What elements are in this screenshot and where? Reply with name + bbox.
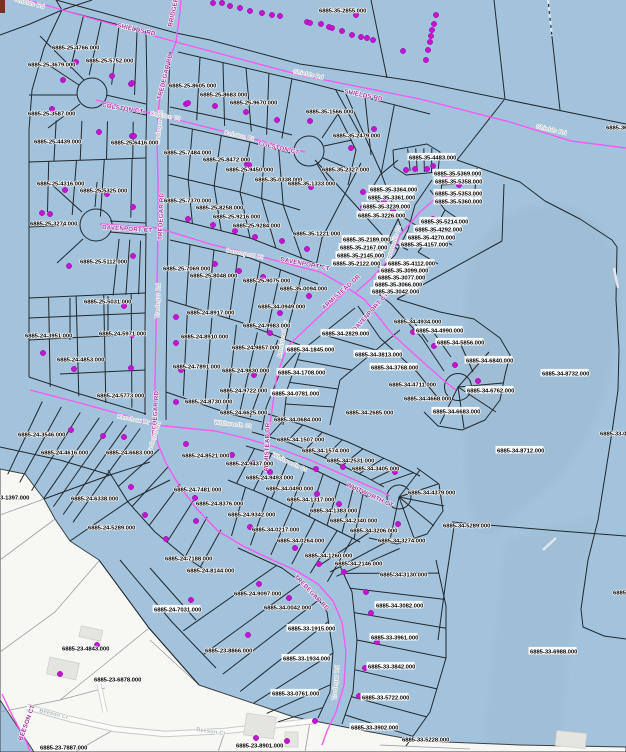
svg-text:6885-35-2167.000: 6885-35-2167.000 [340, 245, 388, 251]
svg-text:6885-24-9857.000: 6885-24-9857.000 [232, 345, 280, 351]
svg-text:6885-34-2146.000: 6885-34-2146.000 [335, 561, 383, 567]
svg-text:6885-34-3768.000: 6885-34-3768.000 [371, 365, 419, 371]
svg-text:6885-23-6878.000: 6885-23-6878.000 [94, 677, 142, 683]
svg-text:6885-25-5031.000: 6885-25-5031.000 [84, 299, 132, 305]
svg-text:6885-23-8901.000: 6885-23-8901.000 [236, 743, 284, 749]
svg-text:6885-25-8683.000: 6885-25-8683.000 [200, 92, 248, 98]
svg-text:6885-24-8521.000: 6885-24-8521.000 [182, 453, 230, 459]
svg-text:6885-25-9216.000: 6885-25-9216.000 [213, 214, 261, 220]
svg-text:6885-24-8144.000: 6885-24-8144.000 [187, 568, 235, 574]
svg-text:6885-25-7370.000: 6885-25-7370.000 [164, 198, 212, 204]
svg-text:6885-33-6988.000: 6885-33-6988.000 [530, 649, 578, 655]
svg-text:6885-34-3206.000: 6885-34-3206.000 [350, 528, 398, 534]
svg-text:6885-34-6762.000: 6885-34-6762.000 [467, 388, 515, 394]
svg-text:6885-24-3951.000: 6885-24-3951.000 [25, 333, 73, 339]
svg-text:6885-25-9075.000: 6885-25-9075.000 [243, 278, 291, 284]
svg-text:6885-24-9983.000: 6885-24-9983.000 [243, 323, 291, 329]
svg-text:6885-24-6338.000: 6885-24-6338.000 [71, 496, 119, 502]
svg-text:6885-25-3274.000: 6885-25-3274.000 [30, 221, 78, 227]
svg-text:6885-23-8866.000: 6885-23-8866.000 [205, 648, 253, 654]
svg-text:6885-35-2122.000: 6885-35-2122.000 [333, 261, 381, 267]
svg-text:6885-35-4112.000: 6885-35-4112.000 [388, 261, 436, 267]
svg-text:6885-35-1566.000: 6885-35-1566.000 [306, 109, 354, 115]
svg-text:6885-24-9830.000: 6885-24-9830.000 [222, 368, 270, 374]
svg-text:6885-24-5289.000: 6885-24-5289.000 [88, 525, 136, 531]
svg-text:6885-34-4934.000: 6885-34-4934.000 [394, 319, 442, 325]
svg-text:6885-23-4843.000: 6885-23-4843.000 [62, 646, 110, 652]
svg-text:6885-25-9670.000: 6885-25-9670.000 [230, 100, 278, 106]
svg-text:6885-33-8016.000: 6885-33-8016.000 [613, 590, 626, 596]
svg-text:6885-34-4668.000: 6885-34-4668.000 [404, 396, 452, 402]
svg-text:6885-24-9493.000: 6885-24-9493.000 [246, 475, 294, 481]
svg-text:6885-33-3842.000: 6885-33-3842.000 [368, 664, 416, 670]
svg-text:6885-35-2145.000: 6885-35-2145.000 [337, 253, 385, 259]
svg-text:6885-24-4616.000: 6885-24-4616.000 [41, 450, 89, 456]
svg-text:6885-25-5752.000: 6885-25-5752.000 [86, 58, 134, 64]
svg-text:6885-35-1221.000: 6885-35-1221.000 [293, 231, 341, 237]
svg-text:6885-35-4157.000: 6885-35-4157.000 [401, 242, 449, 248]
svg-text:6885-33-3961.000: 6885-33-3961.000 [371, 635, 419, 641]
svg-text:6885-35-2855.000: 6885-35-2855.000 [319, 8, 367, 14]
svg-text:6885-25-8605.000: 6885-25-8605.000 [169, 83, 217, 89]
svg-text:6885-35-3239.000: 6885-35-3239.000 [363, 204, 411, 210]
svg-text:6885-35-3361.000: 6885-35-3361.000 [368, 195, 416, 201]
svg-text:6885-34-6840.000: 6885-34-6840.000 [466, 358, 514, 364]
svg-text:6885-24-7031.000: 6885-24-7031.000 [154, 607, 202, 613]
svg-text:6885-25-7484.000: 6885-25-7484.000 [164, 150, 212, 156]
svg-text:6885-25-5325.000: 6885-25-5325.000 [80, 188, 128, 194]
svg-text:6885-25-4766.000: 6885-25-4766.000 [52, 45, 100, 51]
svg-text:6885-34-2531.000: 6885-34-2531.000 [327, 458, 375, 464]
svg-text:6885-35-2479.000: 6885-35-2479.000 [333, 133, 381, 139]
svg-text:6885-25-8048.000: 6885-25-8048.000 [190, 273, 238, 279]
svg-text:6885-35-3226.000: 6885-35-3226.000 [358, 213, 406, 219]
svg-text:6885-24-9342.000: 6885-24-9342.000 [228, 512, 276, 518]
svg-text:6885-24-9722.000: 6885-24-9722.000 [220, 388, 268, 394]
svg-text:6885-34-1260.000: 6885-34-1260.000 [305, 553, 353, 559]
svg-text:6885-24-8910.000: 6885-24-8910.000 [181, 334, 229, 340]
svg-text:6885-35-5369.000: 6885-35-5369.000 [434, 171, 482, 177]
svg-text:6885-34-3274.000: 6885-34-3274.000 [378, 538, 426, 544]
svg-text:6885-34-0949.000: 6885-34-0949.000 [258, 304, 306, 310]
svg-text:6885-24-6625.000: 6885-24-6625.000 [220, 410, 268, 416]
svg-text:6885-24-5971.000: 6885-24-5971.000 [99, 331, 147, 337]
svg-text:6885-24-7481.000: 6885-24-7481.000 [174, 487, 222, 493]
svg-text:6885-34-5856.000: 6885-34-5856.000 [437, 340, 485, 346]
svg-text:6885-34-2829.000: 6885-34-2829.000 [322, 331, 370, 337]
svg-text:6885-33-5228.000: 6885-33-5228.000 [402, 737, 450, 743]
svg-text:6885-34-0490.000: 6885-34-0490.000 [266, 486, 314, 492]
svg-text:6885-34-0781.000: 6885-34-0781.000 [272, 391, 320, 397]
svg-text:6885-35-2189.000: 6885-35-2189.000 [343, 237, 391, 243]
svg-text:6885-36-1686.000: 6885-36-1686.000 [606, 125, 626, 131]
svg-text:6885-25-4439.000: 6885-25-4439.000 [34, 139, 82, 145]
svg-text:6885-34-8712.000: 6885-34-8712.000 [497, 448, 545, 454]
svg-text:6885-24-9437.000: 6885-24-9437.000 [226, 461, 274, 467]
svg-text:6885-34-6683.000: 6885-34-6683.000 [433, 409, 481, 415]
svg-text:6885-25-8258.000: 6885-25-8258.000 [196, 205, 244, 211]
svg-text:6885-34-1317.000: 6885-34-1317.000 [287, 497, 335, 503]
svg-text:6885-24-6683.000: 6885-24-6683.000 [106, 450, 154, 456]
svg-text:6885-23-1397.000: 6885-23-1397.000 [0, 495, 30, 501]
svg-text:6885-25-3679.000: 6885-25-3679.000 [28, 62, 76, 68]
svg-text:6885-33-5722.000: 6885-33-5722.000 [362, 695, 410, 701]
svg-text:6885-24-8376.000: 6885-24-8376.000 [196, 501, 244, 507]
svg-text:6885-24-8917.000: 6885-24-8917.000 [187, 310, 235, 316]
svg-text:6885-35-4483.000: 6885-35-4483.000 [409, 155, 457, 161]
svg-text:6885-25-6416.000: 6885-25-6416.000 [111, 140, 159, 146]
svg-text:6885-35-3066.000: 6885-35-3066.000 [375, 282, 423, 288]
svg-text:6885-35-5358.000: 6885-35-5358.000 [435, 179, 483, 185]
svg-text:6885-25-7069.000: 6885-25-7069.000 [163, 266, 211, 272]
svg-text:6885-34-3813.000: 6885-34-3813.000 [355, 352, 403, 358]
svg-text:6885-35-4292.000: 6885-35-4292.000 [415, 227, 463, 233]
svg-text:6885-34-3082.000: 6885-34-3082.000 [376, 603, 424, 609]
svg-text:6885-34-2685.000: 6885-34-2685.000 [346, 410, 394, 416]
svg-text:6885-34-8732.000: 6885-34-8732.000 [542, 371, 590, 377]
svg-text:6885-33-0919.000: 6885-33-0919.000 [600, 431, 626, 437]
svg-text:6885-34-0264.000: 6885-34-0264.000 [277, 538, 325, 544]
svg-text:6885-35-1333.000: 6885-35-1333.000 [288, 181, 336, 187]
svg-text:6885-33-0761.000: 6885-33-0761.000 [272, 691, 320, 697]
svg-text:6885-24-3546.000: 6885-24-3546.000 [18, 432, 66, 438]
svg-text:6885-25-4316.000: 6885-25-4316.000 [37, 181, 85, 187]
svg-text:6885-35-3042.000: 6885-35-3042.000 [372, 289, 420, 295]
svg-text:6885-25-5112.000: 6885-25-5112.000 [80, 259, 128, 265]
svg-text:6885-35-5360.000: 6885-35-5360.000 [435, 199, 483, 205]
svg-text:6885-34-1845.000: 6885-34-1845.000 [287, 347, 335, 353]
svg-text:6885-35-3099.000: 6885-35-3099.000 [381, 268, 429, 274]
svg-text:6885-34-0684.000: 6885-34-0684.000 [274, 417, 322, 423]
svg-text:6885-35-0094.000: 6885-35-0094.000 [280, 286, 328, 292]
svg-text:6885-24-4853.000: 6885-24-4853.000 [57, 357, 105, 363]
svg-text:6885-24-5773.000: 6885-24-5773.000 [97, 393, 145, 399]
svg-text:6885-25-3587.000: 6885-25-3587.000 [28, 111, 76, 117]
svg-text:6885-34-0042.000: 6885-34-0042.000 [264, 605, 312, 611]
svg-text:6885-35-5353.000: 6885-35-5353.000 [435, 191, 483, 197]
svg-text:6885-24-9097.000: 6885-24-9097.000 [234, 591, 282, 597]
svg-text:6885-24-8730.000: 6885-24-8730.000 [185, 399, 233, 405]
svg-text:6885-35-4270.000: 6885-35-4270.000 [408, 235, 456, 241]
svg-text:6885-34-4990.000: 6885-34-4990.000 [416, 328, 464, 334]
svg-text:6885-35-3077.000: 6885-35-3077.000 [378, 275, 426, 281]
svg-text:6885-34-1383.000: 6885-34-1383.000 [310, 508, 358, 514]
svg-text:6885-25-9284.000: 6885-25-9284.000 [233, 223, 281, 229]
svg-text:6885-25-8472.000: 6885-25-8472.000 [203, 157, 251, 163]
svg-text:6885-33-1915.000: 6885-33-1915.000 [288, 626, 336, 632]
svg-text:6885-35-5214.000: 6885-35-5214.000 [421, 219, 469, 225]
svg-text:6885-34-0217.000: 6885-34-0217.000 [252, 527, 300, 533]
svg-text:6885-34-3130.000: 6885-34-3130.000 [380, 572, 428, 578]
svg-text:6885-24-7188.000: 6885-24-7188.000 [165, 556, 213, 562]
svg-text:6885-34-5289.000: 6885-34-5289.000 [443, 523, 491, 529]
svg-text:6885-35-2327.000: 6885-35-2327.000 [322, 167, 370, 173]
svg-text:6885-33-1934.000: 6885-33-1934.000 [283, 656, 331, 662]
svg-text:6885-34-4379.000: 6885-34-4379.000 [408, 490, 456, 496]
svg-text:6885-34-1574.000: 6885-34-1574.000 [302, 448, 350, 454]
svg-text:6885-24-7891.000: 6885-24-7891.000 [173, 364, 221, 370]
svg-text:6885-35-3364.000: 6885-35-3364.000 [370, 187, 418, 193]
svg-text:6885-33-3902.000: 6885-33-3902.000 [351, 725, 399, 731]
svg-text:6885-34-3405.000: 6885-34-3405.000 [352, 466, 400, 472]
svg-text:Tredegar Rd: Tredegar Rd [155, 283, 162, 318]
svg-text:6885-34-1507.000: 6885-34-1507.000 [277, 437, 325, 443]
svg-text:6885-34-1708.000: 6885-34-1708.000 [278, 370, 326, 376]
svg-text:6885-23-7887.000: 6885-23-7887.000 [40, 745, 88, 751]
svg-text:6885-34-2340.000: 6885-34-2340.000 [330, 518, 378, 524]
svg-text:6885-34-4711.000: 6885-34-4711.000 [389, 382, 437, 388]
svg-text:6885-25-9450.000: 6885-25-9450.000 [226, 167, 274, 173]
